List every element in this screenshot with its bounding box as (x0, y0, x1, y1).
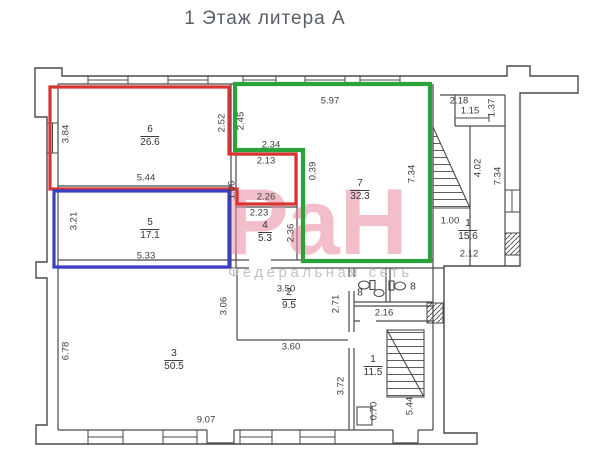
staircase-lower (387, 330, 424, 397)
room-label: 3 50.5 (164, 348, 183, 372)
room-label: 1 15.6 (458, 218, 477, 242)
dimension-label: 2.13 (257, 156, 276, 167)
dimension-label: 2.52 (217, 114, 228, 133)
dimension-label: 1.15 (461, 106, 480, 117)
floor-plan-drawing: РаН Федеральная сеть (0, 0, 603, 465)
dimension-label: 6.78 (61, 342, 72, 361)
dimension-label: 3.06 (219, 297, 230, 316)
dimension-label: 7.34 (407, 165, 418, 184)
floor-plan-page: 1 Этаж литера А (0, 0, 603, 465)
dimension-label: 2.71 (331, 295, 342, 314)
watermark-logo: РаН (226, 169, 408, 274)
room-label: 1 11.5 (364, 354, 383, 378)
dimension-label: 1.37 (487, 99, 498, 118)
room-label: 7 32.3 (350, 178, 369, 202)
dimension-label: 0.39 (308, 162, 319, 181)
dimension-label: 5.44 (405, 397, 416, 416)
room-label: 4 5.3 (258, 220, 272, 244)
dimension-label: 2.26 (257, 192, 276, 203)
room-label: 8 (410, 281, 416, 293)
dimension-label: 5.97 (321, 96, 340, 107)
dimension-label: 3.60 (282, 342, 301, 353)
dimension-label: 2.16 (375, 308, 394, 319)
dimension-label: 2.23 (250, 208, 269, 219)
dimension-label: 0.70 (369, 402, 380, 421)
dimension-label: 2.45 (236, 112, 247, 131)
dimension-label: 7.34 (493, 167, 504, 186)
dimension-label: 3.21 (69, 212, 80, 231)
dimension-label: 2.12 (460, 249, 479, 260)
watermark-subtitle: Федеральная сеть (228, 264, 413, 281)
room-label: 6 26.6 (140, 124, 159, 148)
dimension-label: 3.84 (61, 125, 72, 144)
room-label: 5 17.1 (140, 217, 159, 241)
dimension-label: 2.34 (262, 140, 281, 151)
dimension-label: 9.07 (197, 415, 216, 426)
room-label: 8 (357, 287, 363, 299)
dimension-label: 5.33 (137, 251, 156, 262)
dimension-label: 3.72 (336, 377, 347, 396)
dimension-label: 5.44 (137, 173, 156, 184)
staircase-upper (433, 127, 470, 208)
toilet-fixtures (359, 281, 406, 297)
dimension-label: 1.00 (441, 216, 460, 227)
hatched-pier (505, 233, 520, 255)
hatched-pier (427, 303, 443, 323)
dimension-label: 2.36 (286, 224, 297, 243)
dimension-label: 1.06 (227, 181, 238, 200)
dimension-label: 4.02 (473, 159, 484, 178)
dimension-label: 3.50 (277, 284, 296, 295)
